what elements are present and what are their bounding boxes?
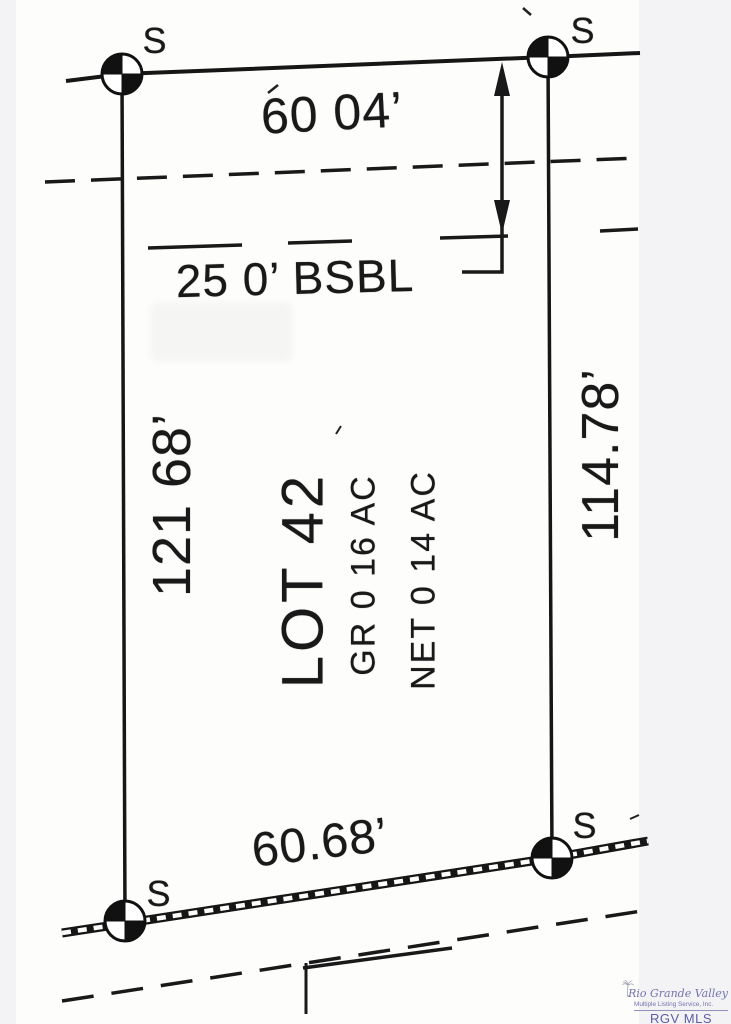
- plat-scan: 60 04’ 25 0’ BSBL 121 68’ 114.78’ LOT 42…: [0, 0, 731, 1024]
- dim-top-label: 60 04’: [259, 80, 404, 145]
- rgvmls-watermark: Rio Grande Valley Multiple Listing Servi…: [622, 970, 728, 1024]
- watermark-script-name: Rio Grande Valley: [628, 988, 728, 1000]
- marker-label-top-left: S: [142, 20, 167, 62]
- watermark-subtitle: Multiple Listing Service, Inc.: [634, 1001, 728, 1011]
- dim-right-label: 114.78’: [571, 368, 631, 542]
- marker-label-bottom-left: S: [146, 873, 171, 915]
- net-area-label: NET 0 14 AC: [405, 470, 444, 690]
- boundary-right: [548, 57, 552, 857]
- dim-left-label: 121 68’: [141, 413, 203, 597]
- survey-marker-icon: [528, 37, 568, 77]
- gross-area-label: GR 0 16 AC: [345, 474, 384, 675]
- leader-line: [462, 226, 502, 272]
- bottom-dashed-line: [62, 910, 648, 1014]
- boundary-left: [122, 74, 125, 921]
- arrowhead-up: [494, 62, 510, 96]
- bsbl-dashed-line: [148, 229, 638, 248]
- survey-marker-icon: [102, 54, 142, 94]
- survey-marker-icon: [105, 901, 145, 941]
- watermark-abbr: RGV MLS: [634, 1012, 728, 1024]
- marker-label-bottom-right: S: [572, 805, 597, 847]
- setback-label: 25 0’ BSBL: [175, 248, 415, 308]
- marker-label-top-right: S: [570, 10, 595, 52]
- setback-dimension-arrow: [462, 62, 510, 272]
- lot-number-label: LOT 42: [270, 472, 337, 688]
- survey-marker-icon: [532, 838, 572, 878]
